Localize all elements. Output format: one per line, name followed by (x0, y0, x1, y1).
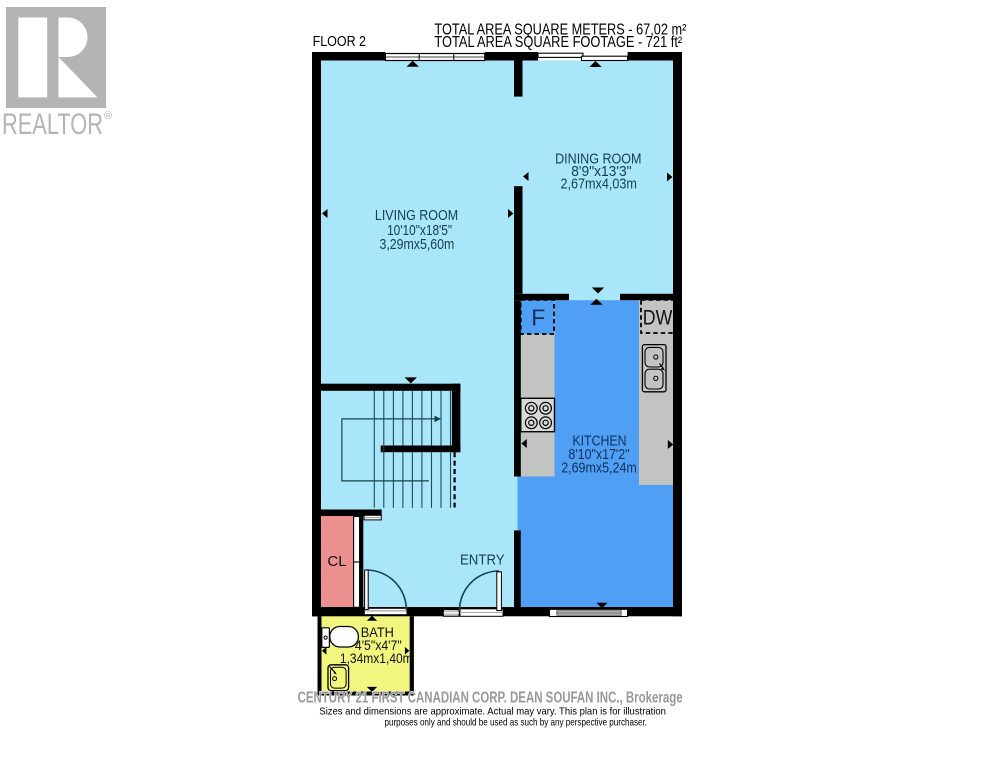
svg-text:CENTURY 21 FIRST CANADIAN CORP: CENTURY 21 FIRST CANADIAN CORP. DEAN SOU… (298, 690, 683, 707)
svg-text:CL: CL (327, 553, 346, 570)
svg-text:2,67mx4,03m: 2,67mx4,03m (560, 176, 637, 193)
svg-text:ENTRY: ENTRY (460, 551, 505, 568)
svg-text:2,69mx5,24m: 2,69mx5,24m (561, 459, 637, 476)
svg-text:purposes only and should be us: purposes only and should be used as such… (385, 716, 648, 728)
svg-text:3,29mx5,60m: 3,29mx5,60m (379, 236, 454, 253)
svg-text:TOTAL AREA SQUARE FOOTAGE - 72: TOTAL AREA SQUARE FOOTAGE - 721 ft² (434, 34, 682, 51)
svg-text:1,34mx1,40m: 1,34mx1,40m (340, 650, 413, 666)
svg-text:FLOOR 2: FLOOR 2 (313, 33, 366, 50)
svg-text:F: F (531, 305, 545, 331)
svg-text:DW: DW (643, 307, 673, 330)
svg-text:®: ® (104, 110, 112, 122)
svg-text:REALTOR: REALTOR (2, 108, 103, 141)
